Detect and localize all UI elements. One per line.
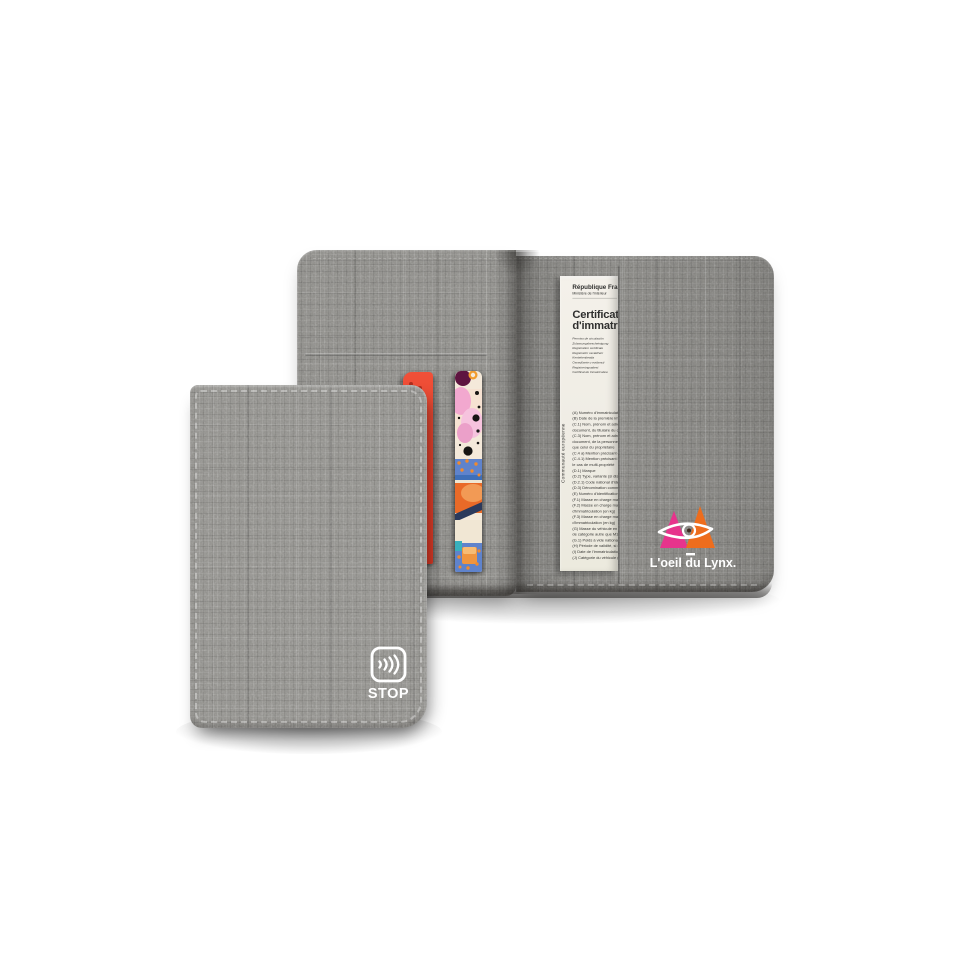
closed-wallet: STOP bbox=[190, 385, 427, 728]
document-ministry: Ministère de l'intérieur bbox=[572, 291, 617, 298]
document-side-label: Communauté européenne bbox=[561, 326, 569, 483]
document-authority: République Française bbox=[572, 283, 617, 290]
document-translations: Permiso de circulaciónZulassungsbeschein… bbox=[572, 336, 617, 374]
open-wallet-bottom-stitching bbox=[527, 584, 757, 586]
brand-orange-triangle bbox=[686, 506, 715, 548]
list-line: Certificat de înmatriculare bbox=[572, 370, 617, 375]
document-field-list: (A) Numéro d'immatriculation(B) Date de … bbox=[572, 410, 617, 561]
brand-logo: L'oeil du Lynx. bbox=[649, 502, 737, 570]
document-title: Certificat d'immatriculation bbox=[572, 309, 617, 331]
document-pocket-edge bbox=[618, 266, 621, 584]
product-photo-scene: Communauté européenne République Françai… bbox=[0, 0, 960, 960]
rfid-stop-badge: STOP bbox=[368, 645, 410, 705]
rfid-badge-frame bbox=[372, 648, 405, 681]
brand-wordmark: L'oeil du Lynx. bbox=[650, 556, 737, 570]
contactless-waves-icon bbox=[380, 656, 399, 674]
list-line: (J) Catégorie du véhicule (CE) bbox=[572, 555, 617, 561]
art-card-print bbox=[455, 371, 482, 572]
art-print-card bbox=[455, 371, 482, 572]
open-wallet-top-stitching bbox=[313, 258, 753, 259]
registration-document: Communauté européenne République Françai… bbox=[560, 276, 618, 571]
rfid-stop-label: STOP bbox=[368, 686, 409, 702]
card-panel-seam bbox=[305, 353, 487, 356]
